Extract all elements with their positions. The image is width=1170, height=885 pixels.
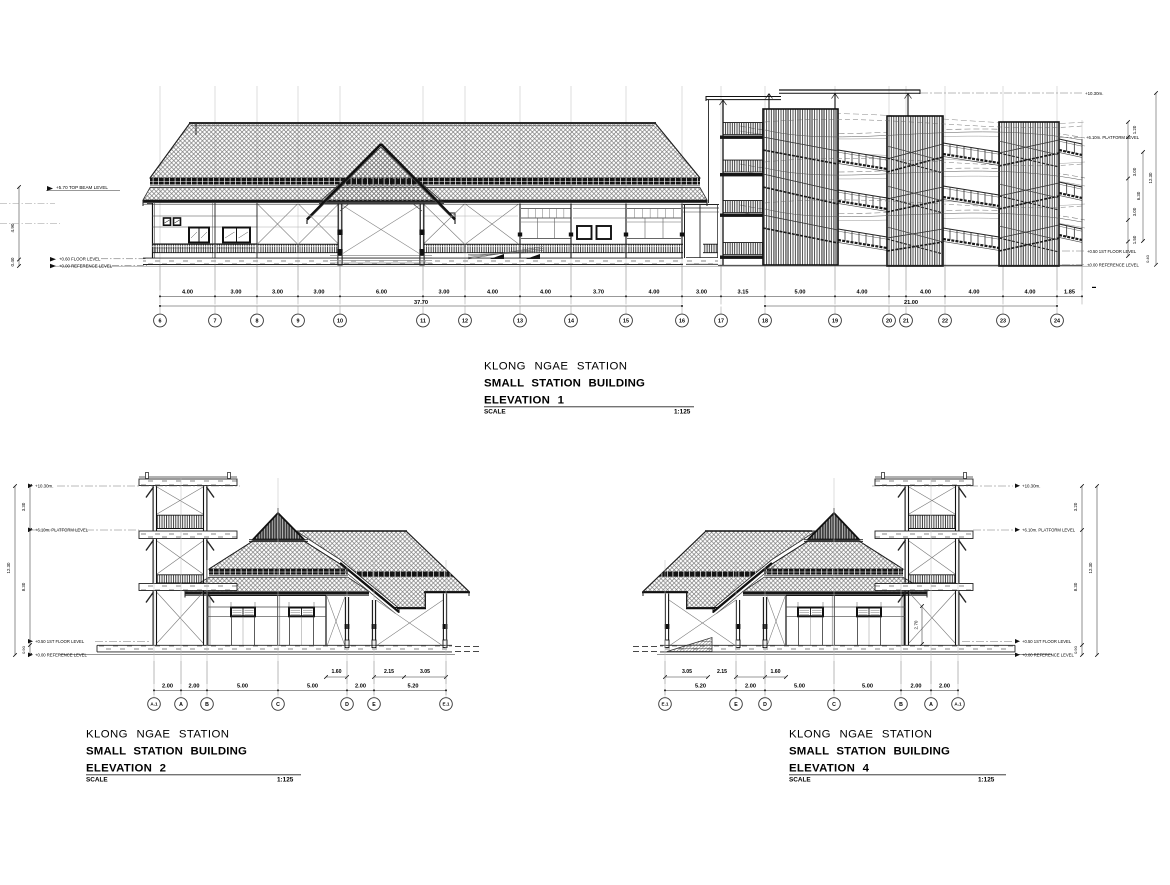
svg-text:13: 13 (517, 318, 523, 324)
svg-text:0.40: 0.40 (10, 257, 15, 266)
svg-text:6.00: 6.00 (376, 290, 387, 296)
svg-text:1.60: 1.60 (770, 669, 780, 675)
svg-text:37.70: 37.70 (414, 300, 428, 306)
svg-text:A.1: A.1 (150, 702, 158, 707)
svg-text:4.00: 4.00 (920, 290, 931, 296)
svg-text:E.1: E.1 (662, 702, 669, 707)
svg-text:C: C (276, 702, 280, 708)
svg-text:SCALE: SCALE (86, 777, 108, 784)
svg-text:3.05: 3.05 (682, 669, 692, 675)
svg-text:12: 12 (462, 318, 468, 324)
svg-text:4.00: 4.00 (1025, 290, 1036, 296)
svg-text:19: 19 (832, 318, 838, 324)
svg-text:E.1: E.1 (443, 702, 450, 707)
svg-text:B: B (205, 702, 209, 708)
svg-text:5.00: 5.00 (795, 290, 806, 296)
svg-text:4.00: 4.00 (857, 290, 868, 296)
svg-text:+0.50 1ST FLOOR LEVEL: +0.50 1ST FLOOR LEVEL (1087, 249, 1137, 254)
svg-text:A: A (179, 702, 183, 708)
svg-text:3.00: 3.00 (696, 290, 707, 296)
svg-text:16: 16 (679, 318, 685, 324)
svg-text:3.00: 3.00 (1132, 207, 1137, 216)
svg-text:4.00: 4.00 (649, 290, 660, 296)
svg-text:3.05: 3.05 (420, 669, 430, 675)
svg-text:1:125: 1:125 (978, 777, 995, 784)
svg-text:A.1: A.1 (954, 702, 962, 707)
svg-text:▬: ▬ (1092, 284, 1096, 289)
svg-text:21.00: 21.00 (904, 300, 918, 306)
svg-text:8.30: 8.30 (21, 582, 26, 591)
svg-text:ELEVATION 1: ELEVATION 1 (484, 395, 565, 407)
svg-text:8: 8 (256, 318, 259, 324)
svg-text:20: 20 (886, 318, 892, 324)
svg-text:5.00: 5.00 (862, 684, 873, 690)
svg-text:+5.70 TOP BEAM LEVEL: +5.70 TOP BEAM LEVEL (56, 185, 108, 190)
svg-text:KLONG NGAE STATION: KLONG NGAE STATION (484, 361, 627, 373)
svg-text:+10.30m.: +10.30m. (1022, 484, 1040, 489)
svg-text:14: 14 (568, 318, 574, 324)
svg-text:+10.30m.: +10.30m. (35, 484, 53, 489)
svg-text:15: 15 (623, 318, 629, 324)
svg-text:SMALL STATION BUILDING: SMALL STATION BUILDING (484, 378, 645, 390)
svg-text:6.30: 6.30 (1136, 191, 1141, 200)
svg-text:4.00: 4.00 (487, 290, 498, 296)
svg-text:5.00: 5.00 (237, 684, 248, 690)
svg-text:2.00: 2.00 (745, 684, 756, 690)
svg-text:4.00: 4.00 (540, 290, 551, 296)
svg-text:2.15: 2.15 (717, 669, 727, 675)
svg-text:+0.60 FLOOR LEVEL: +0.60 FLOOR LEVEL (59, 257, 101, 262)
svg-text:KLONG NGAE STATION: KLONG NGAE STATION (789, 729, 932, 741)
svg-text:5.00: 5.00 (794, 684, 805, 690)
svg-text:+0.00 REFERENCE LEVEL: +0.00 REFERENCE LEVEL (1087, 263, 1139, 268)
svg-text:6: 6 (159, 318, 162, 324)
svg-text:KLONG NGAE STATION: KLONG NGAE STATION (86, 729, 229, 741)
svg-text:+0.50 1ST FLOOR LEVEL: +0.50 1ST FLOOR LEVEL (35, 639, 85, 644)
svg-text:1:125: 1:125 (674, 409, 691, 416)
svg-text:2.15: 2.15 (384, 669, 394, 675)
svg-text:12.30: 12.30 (1148, 172, 1153, 184)
svg-text:4.00: 4.00 (182, 290, 193, 296)
svg-text:1.20: 1.20 (1132, 125, 1137, 134)
svg-text:SMALL STATION BUILDING: SMALL STATION BUILDING (86, 746, 247, 758)
svg-text:17: 17 (718, 318, 724, 324)
svg-text:+6.10m. PLATFORM LEVEL: +6.10m. PLATFORM LEVEL (1022, 528, 1076, 533)
svg-text:E: E (372, 702, 376, 708)
svg-text:1.85: 1.85 (1064, 290, 1075, 296)
svg-text:5.00: 5.00 (307, 684, 318, 690)
svg-text:0.90: 0.90 (1073, 645, 1078, 654)
svg-text:E: E (734, 702, 738, 708)
svg-text:3.00: 3.00 (272, 290, 283, 296)
svg-text:3.70: 3.70 (593, 290, 604, 296)
svg-text:12.30: 12.30 (1088, 562, 1093, 574)
svg-text:+10.30m.: +10.30m. (1085, 91, 1103, 96)
svg-text:0.40: 0.40 (1145, 254, 1150, 263)
svg-text:3.15: 3.15 (738, 290, 749, 296)
svg-text:3.00: 3.00 (314, 290, 325, 296)
svg-text:21: 21 (903, 318, 909, 324)
svg-text:SMALL STATION BUILDING: SMALL STATION BUILDING (789, 746, 950, 758)
svg-text:5.20: 5.20 (695, 684, 706, 690)
svg-text:3.00: 3.00 (1132, 167, 1137, 176)
svg-text:+0.00 REFERENCE LEVEL: +0.00 REFERENCE LEVEL (59, 263, 113, 268)
svg-text:1.60: 1.60 (331, 669, 341, 675)
svg-text:3.30: 3.30 (21, 502, 26, 511)
svg-text:2.00: 2.00 (939, 684, 950, 690)
svg-text:2.00: 2.00 (162, 684, 173, 690)
svg-text:+0.50 1ST FLOOR LEVEL: +0.50 1ST FLOOR LEVEL (1022, 639, 1072, 644)
svg-text:2.00: 2.00 (355, 684, 366, 690)
svg-text:2.70: 2.70 (914, 620, 919, 629)
svg-text:B: B (899, 702, 903, 708)
svg-text:+0.00 REFERENCE LEVEL: +0.00 REFERENCE LEVEL (35, 653, 87, 658)
svg-text:9: 9 (297, 318, 300, 324)
svg-text:SCALE: SCALE (484, 409, 506, 416)
svg-text:+6.10m. PLATFORM LEVEL: +6.10m. PLATFORM LEVEL (1086, 135, 1140, 140)
svg-text:3.00: 3.00 (231, 290, 242, 296)
svg-text:5.20: 5.20 (408, 684, 419, 690)
svg-text:A: A (929, 702, 933, 708)
svg-text:12.30: 12.30 (6, 562, 11, 574)
svg-text:8.30: 8.30 (1073, 582, 1078, 591)
svg-text:4.90: 4.90 (10, 223, 15, 232)
svg-text:11: 11 (420, 318, 426, 324)
svg-text:7: 7 (214, 318, 217, 324)
svg-text:3.00: 3.00 (439, 290, 450, 296)
svg-text:2.00: 2.00 (911, 684, 922, 690)
svg-text:C: C (832, 702, 836, 708)
svg-text:18: 18 (762, 318, 768, 324)
svg-text:D: D (763, 702, 767, 708)
svg-text:1:125: 1:125 (277, 777, 294, 784)
svg-text:SCALE: SCALE (789, 777, 811, 784)
svg-text:4.00: 4.00 (969, 290, 980, 296)
svg-text:24: 24 (1054, 318, 1060, 324)
svg-text:3.20: 3.20 (1073, 502, 1078, 511)
svg-text:10: 10 (337, 318, 343, 324)
svg-text:+0.00 REFERENCE LEVEL: +0.00 REFERENCE LEVEL (1022, 653, 1074, 658)
svg-text:0.90: 0.90 (21, 645, 26, 654)
svg-text:23: 23 (1000, 318, 1006, 324)
svg-text:ELEVATION 2: ELEVATION 2 (86, 763, 166, 775)
svg-text:ELEVATION 4: ELEVATION 4 (789, 763, 870, 775)
svg-text:D: D (345, 702, 349, 708)
svg-text:22: 22 (942, 318, 948, 324)
svg-text:1.50: 1.50 (1132, 235, 1137, 244)
svg-text:2.00: 2.00 (189, 684, 200, 690)
